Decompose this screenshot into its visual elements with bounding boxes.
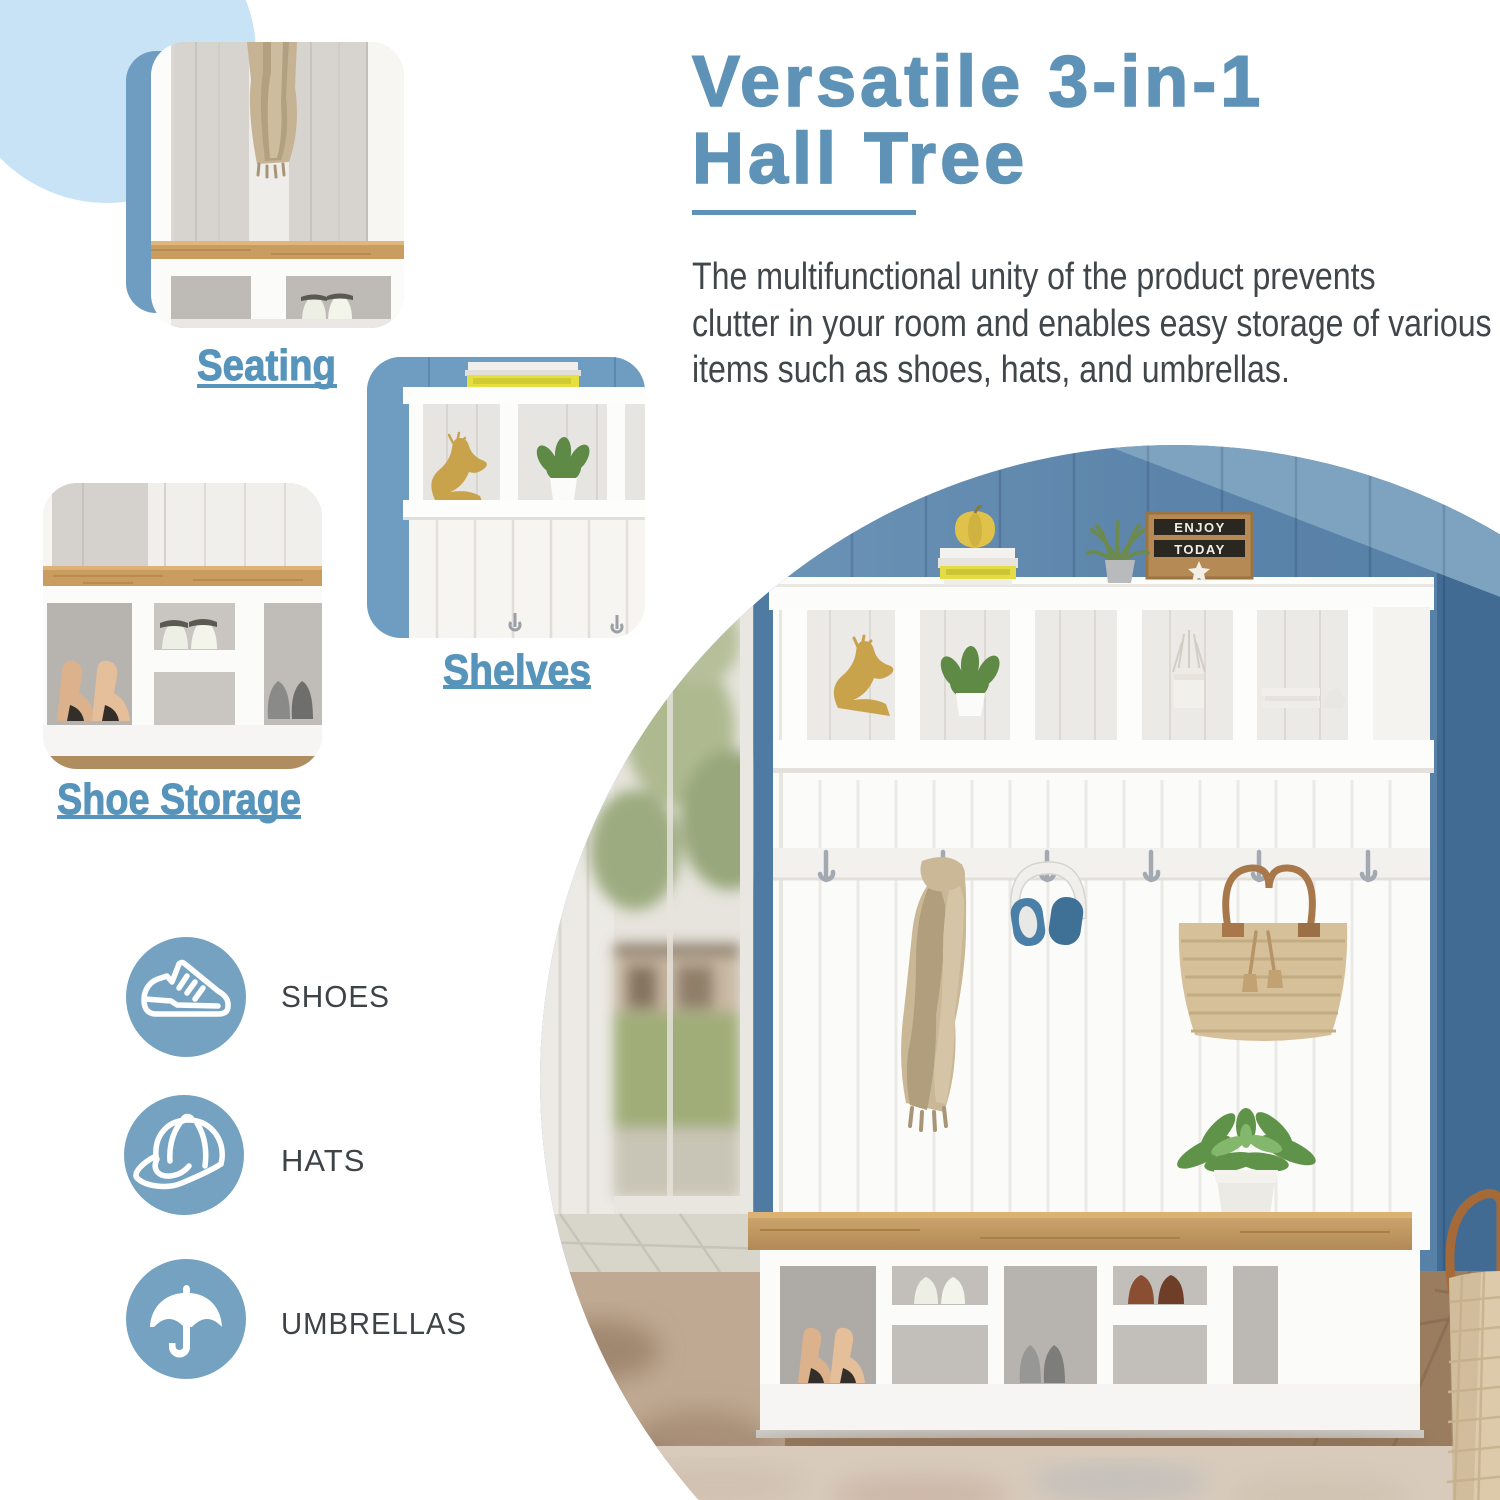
svg-text:TODAY: TODAY	[1174, 542, 1226, 557]
svg-text:ENJOY: ENJOY	[1174, 520, 1226, 535]
